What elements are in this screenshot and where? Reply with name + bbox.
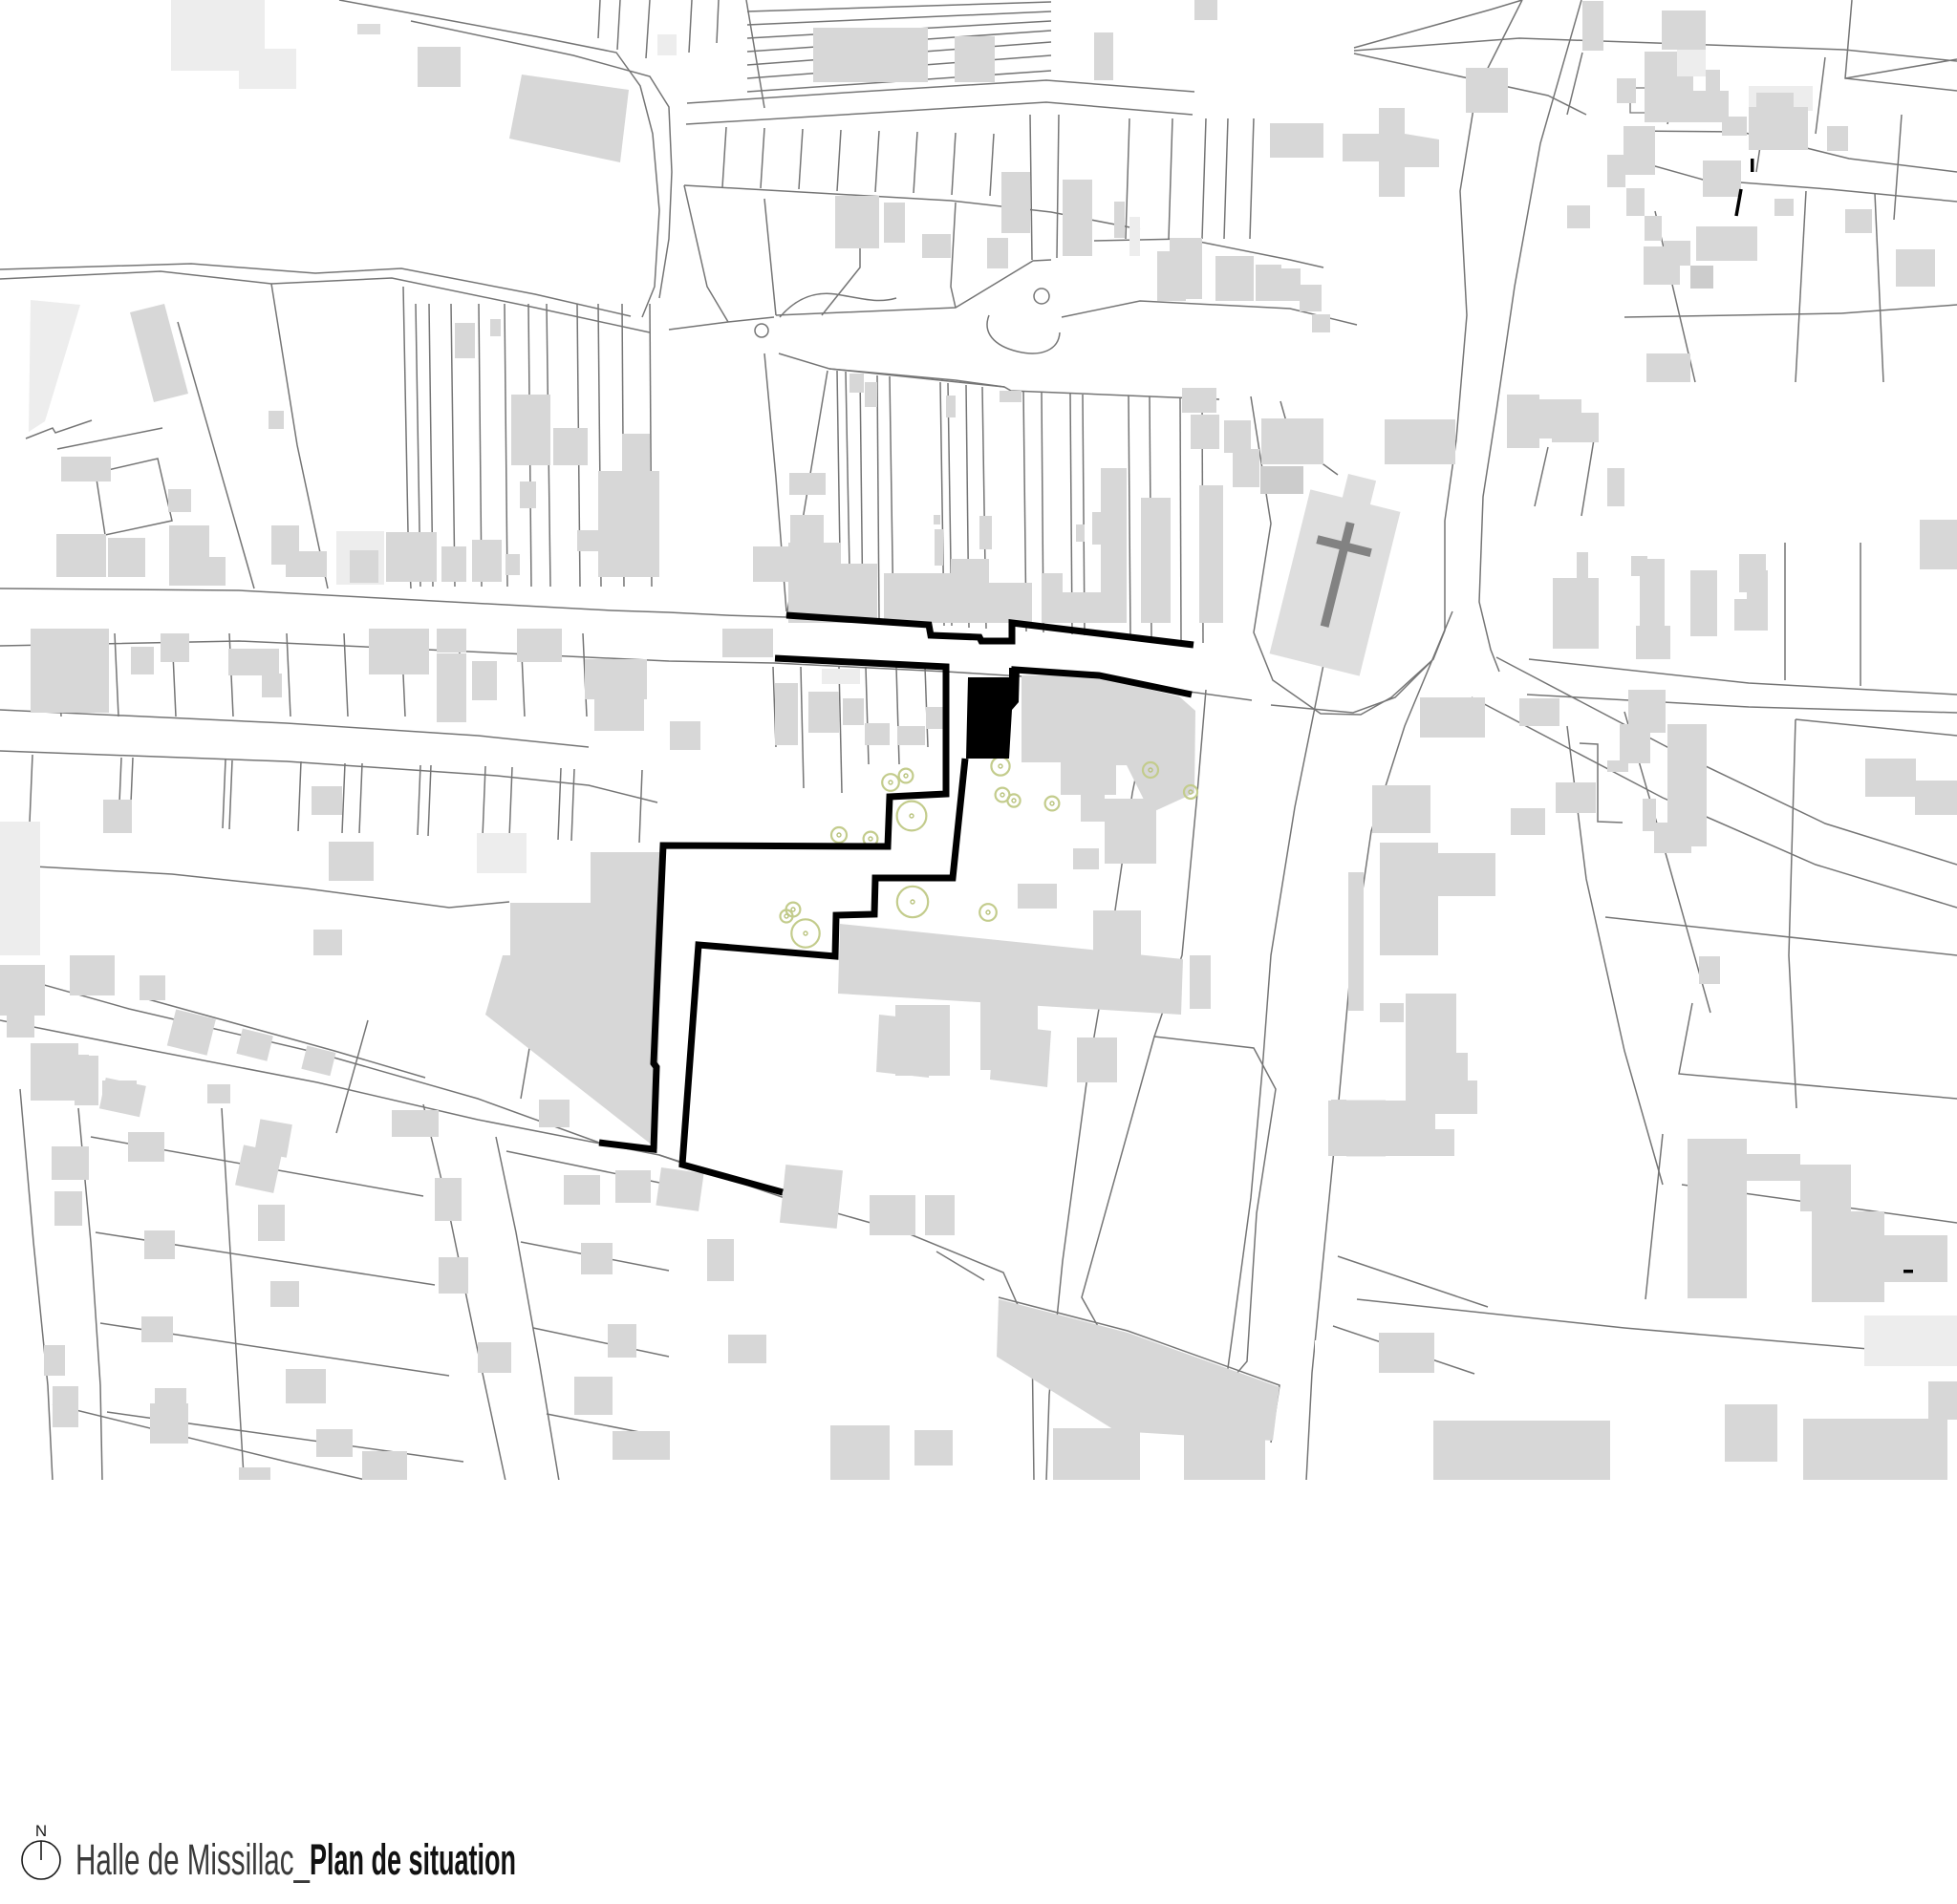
- svg-text:Halle de Missillac_: Halle de Missillac_: [75, 1835, 311, 1884]
- svg-text:Plan de situation: Plan de situation: [310, 1835, 516, 1884]
- svg-text:N: N: [35, 1822, 47, 1840]
